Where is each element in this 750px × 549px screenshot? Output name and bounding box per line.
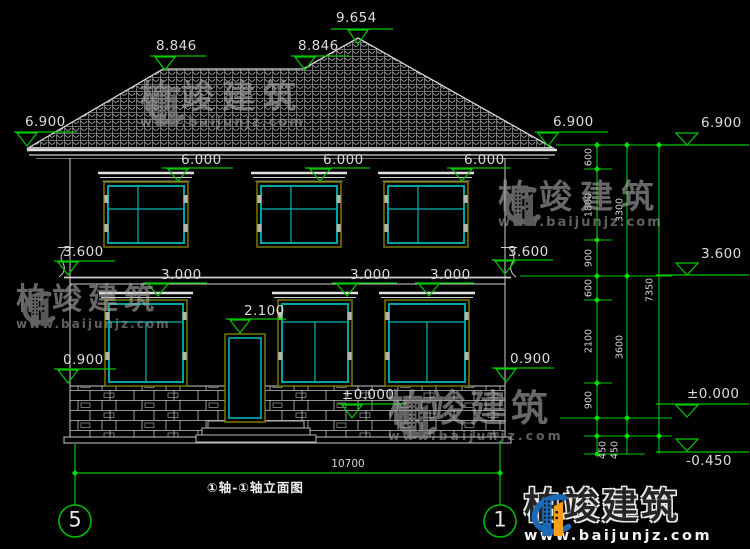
overall-width-label: 10700 — [331, 459, 364, 470]
windows-second-floor — [98, 173, 474, 247]
brand-logo-icon — [492, 180, 546, 238]
dim-label: 600 — [584, 148, 594, 166]
dim-label: 7350 — [645, 278, 655, 302]
elevation-label: 6.000 — [181, 154, 222, 168]
elevation-label: 3.000 — [430, 269, 471, 283]
watermark: 柏竣建筑 www.baijunjz.com — [12, 285, 171, 330]
elevation-label: 8.846 — [298, 40, 339, 54]
dim-label: 450 — [598, 441, 608, 459]
elevation-label: 3.600 — [508, 246, 549, 260]
brand-logo-icon — [384, 390, 442, 452]
watermark: 柏竣建筑 www.baijunjz.com — [492, 180, 663, 229]
elevation-label: 6.900 — [701, 117, 742, 131]
elevation-label: 2.100 — [244, 305, 285, 319]
elevation-label: 0.900 — [510, 353, 551, 367]
brand-logo-icon — [12, 285, 60, 337]
dim-label: 900 — [584, 249, 594, 267]
elevation-label: 3.600 — [63, 246, 104, 260]
elevation-label: 3.000 — [350, 269, 391, 283]
dim-label: 2100 — [584, 329, 594, 353]
elevation-label: ±0.000 — [687, 388, 739, 402]
drawing-title: ①轴-①轴立面图 — [207, 477, 304, 496]
window-2f-1 — [98, 173, 194, 247]
elevation-label: 6.900 — [553, 116, 594, 130]
elevation-label: 3.000 — [161, 269, 202, 283]
elevation-drawing-canvas: 9.654 8.846 8.846 6.900 6.900 6.900 6.00… — [0, 0, 750, 549]
dim-label: 450 — [610, 441, 620, 459]
watermark: 柏竣建筑 www.baijunjz.com — [136, 80, 305, 129]
axis-number-right: 1 — [493, 510, 506, 531]
watermark: 柏竣建筑 www.baijunjz.com — [384, 390, 564, 443]
elevation-label: 6.000 — [464, 154, 505, 168]
window-1f-3 — [379, 293, 475, 386]
window-2f-2 — [251, 173, 347, 247]
brand-logo-icon — [518, 489, 578, 547]
elevation-label: 9.654 — [336, 12, 377, 26]
window-1f-2 — [272, 293, 358, 386]
footer-logo: 柏竣建筑 www.baijunjz.com — [518, 489, 712, 544]
dim-label: 900 — [584, 391, 594, 409]
elevation-label: 0.900 — [63, 354, 104, 368]
window-2f-3 — [378, 173, 474, 247]
elevation-label: -0.450 — [686, 455, 732, 469]
elevation-label: 6.900 — [25, 116, 66, 130]
dim-label: 3600 — [615, 335, 625, 359]
brand-logo-icon — [136, 80, 190, 138]
dim-label: 600 — [584, 279, 594, 297]
axis-number-left: 5 — [68, 510, 81, 531]
elevation-label: 6.000 — [323, 154, 364, 168]
elevation-label: 8.846 — [156, 40, 197, 54]
elevation-label: 3.600 — [701, 248, 742, 262]
